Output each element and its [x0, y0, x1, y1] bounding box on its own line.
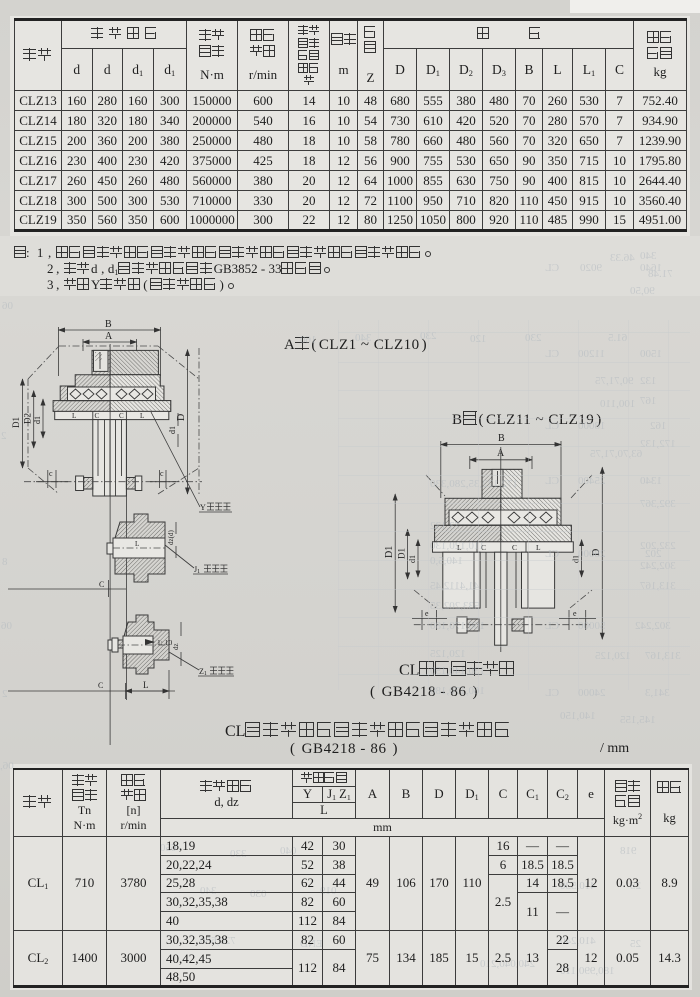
svg-text:B: B	[498, 433, 505, 444]
svg-text:d1: d1	[33, 416, 42, 424]
svg-text:C: C	[99, 580, 104, 589]
svg-text:c: c	[160, 469, 164, 478]
svg-text:Z1: Z1	[199, 667, 207, 677]
svg-text:L: L	[140, 412, 144, 420]
svg-text:L: L	[536, 543, 541, 552]
svg-text:L: L	[143, 680, 149, 690]
svg-text:dz(d): dz(d)	[167, 530, 175, 545]
svg-text:B: B	[105, 319, 112, 330]
svg-text:1: 10: 1: 10	[157, 638, 172, 647]
svg-text:d1: d1	[168, 426, 177, 434]
svg-text:C: C	[512, 543, 517, 552]
svg-text:L: L	[135, 540, 139, 548]
svg-text:c: c	[49, 469, 53, 478]
svg-text:Y: Y	[200, 503, 206, 512]
svg-text:C: C	[95, 412, 100, 420]
svg-text:d1: d1	[408, 555, 417, 563]
svg-text:dz: dz	[172, 643, 180, 650]
svg-text:D2: D2	[23, 413, 33, 424]
svg-text:J1: J1	[194, 565, 200, 575]
svg-text:L: L	[72, 412, 76, 420]
svg-text:A: A	[105, 331, 113, 342]
svg-text:D1: D1	[397, 548, 407, 559]
svg-text:D1: D1	[384, 546, 395, 558]
svg-text:C: C	[98, 681, 103, 690]
svg-text:C: C	[119, 412, 124, 420]
svg-text:D1: D1	[11, 417, 21, 428]
